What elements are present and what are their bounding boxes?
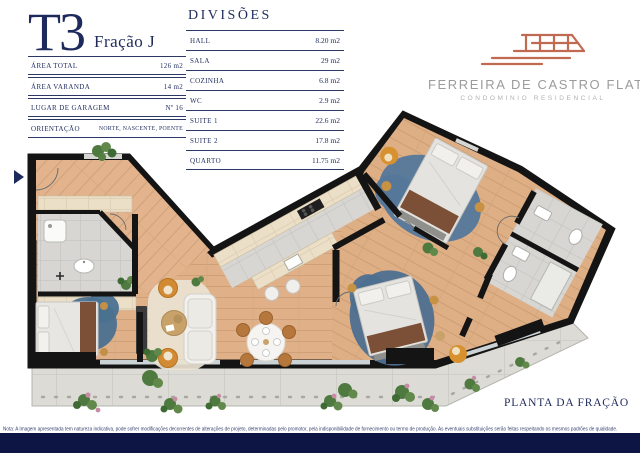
armchair xyxy=(159,279,178,298)
footer-bar xyxy=(0,433,640,453)
footer-note: Nota: A Imagem apresentada tem natureza … xyxy=(3,427,549,432)
division-label: SALA xyxy=(190,57,210,65)
plan-caption: PLANTA DA FRAÇÃO xyxy=(504,397,629,409)
unit-detail-row: ORIENTAÇÃO NORTE, NASCENTE, POENTE xyxy=(28,119,186,138)
division-row: SUITE 1 22.6 m2 xyxy=(186,110,344,129)
unit-detail-row: ÁREA VARANDA 14 m2 xyxy=(28,77,186,96)
division-row: COZINHA 6.8 m2 xyxy=(186,70,344,89)
closet xyxy=(38,196,132,212)
division-value: 6.8 m2 xyxy=(319,76,340,85)
division-label: HALL xyxy=(190,37,210,45)
brand-logo-icon xyxy=(458,22,608,70)
detail-label: ORIENTAÇÃO xyxy=(31,125,80,133)
detail-value: Nº 16 xyxy=(166,104,183,112)
division-row: SUITE 2 17.8 m2 xyxy=(186,130,344,149)
division-value: 11.75 m2 xyxy=(312,156,340,165)
brand-tagline: CONDOMINIO RESIDENCIAL xyxy=(428,95,638,102)
division-value: 8.20 m2 xyxy=(315,36,340,45)
division-label: QUARTO xyxy=(190,157,221,165)
division-row: QUARTO 11.75 m2 xyxy=(186,150,344,170)
division-label: SUITE 1 xyxy=(190,117,218,125)
divisions-title: DIVISÕES xyxy=(188,8,344,24)
detail-value: 14 m2 xyxy=(164,83,183,91)
division-value: 17.8 m2 xyxy=(315,136,340,145)
detail-label: LUGAR DE GARAGEM xyxy=(31,104,110,112)
detail-label: ÁREA TOTAL xyxy=(31,62,78,70)
divisions-table: DIVISÕES HALL 8.20 m2 SALA 29 m2 COZINHA… xyxy=(186,8,344,171)
division-label: SUITE 2 xyxy=(190,137,218,145)
coffee-table xyxy=(162,311,187,336)
division-row: WC 2.9 m2 xyxy=(186,90,344,109)
division-value: 2.9 m2 xyxy=(319,96,340,105)
division-label: WC xyxy=(190,97,202,105)
fraction-label: Fração J xyxy=(94,32,155,52)
unit-type: T3 xyxy=(28,8,84,56)
brand: FERREIRA DE CASTRO FLATS CONDOMINIO RESI… xyxy=(428,22,638,102)
floorplan-sheet: T3 Fração J ÁREA TOTAL 126 m2 ÁREA VARAN… xyxy=(0,0,640,453)
division-label: COZINHA xyxy=(190,77,224,85)
division-row: SALA 29 m2 xyxy=(186,50,344,69)
armchair xyxy=(449,345,467,363)
detail-value: NORTE, NASCENTE, POENTE xyxy=(99,126,183,132)
unit-info: T3 Fração J ÁREA TOTAL 126 m2 ÁREA VARAN… xyxy=(28,4,186,140)
division-row: HALL 8.20 m2 xyxy=(186,30,344,49)
division-value: 29 m2 xyxy=(321,56,340,65)
sofa xyxy=(184,294,216,364)
entrance-arrow-icon xyxy=(14,170,24,184)
unit-detail-row: LUGAR DE GARAGEM Nº 16 xyxy=(28,98,186,117)
detail-value: 126 m2 xyxy=(160,62,183,70)
division-value: 22.6 m2 xyxy=(315,116,340,125)
brand-name: FERREIRA DE CASTRO FLATS xyxy=(428,77,638,92)
detail-label: ÁREA VARANDA xyxy=(31,83,90,91)
unit-details-table: ÁREA TOTAL 126 m2 ÁREA VARANDA 14 m2 LUG… xyxy=(28,56,186,138)
glass-door xyxy=(240,360,370,365)
